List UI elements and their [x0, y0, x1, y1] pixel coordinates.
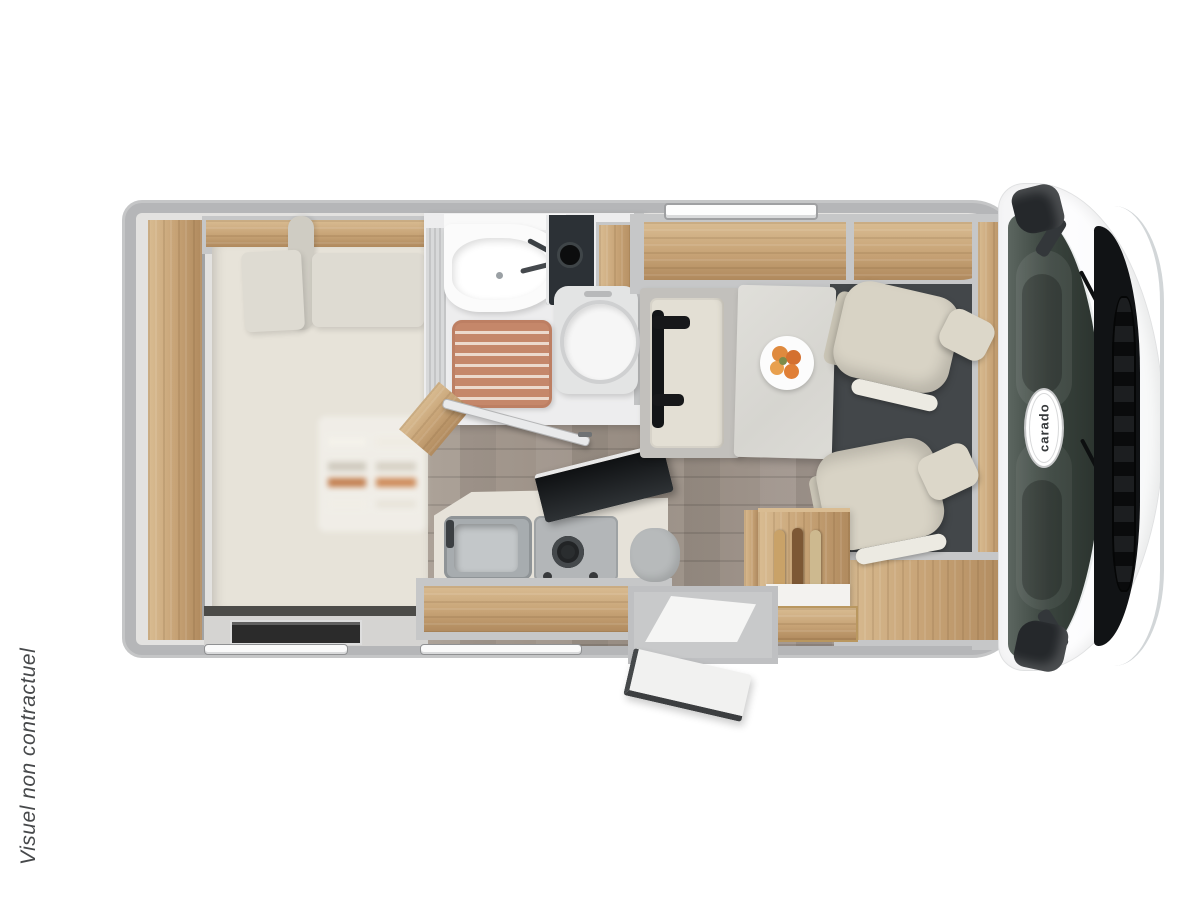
- reflection-bar: [376, 462, 416, 471]
- toilet-hinge: [584, 291, 612, 297]
- dashboard-shadow: [1022, 274, 1062, 394]
- pillow-right: [312, 253, 424, 327]
- reflection-bar: [376, 478, 416, 487]
- reflection-bar: [328, 438, 366, 446]
- caption-visuel-non-contractuel: Visuel non contractuel: [10, 622, 48, 890]
- floor-vent: [230, 620, 362, 645]
- chrome-trim: [1114, 206, 1164, 666]
- door-handle: [578, 432, 592, 437]
- bottle: [810, 530, 821, 588]
- fruit-leaf: [779, 357, 787, 365]
- toilet-seat: [560, 300, 640, 384]
- cab-step-wood-floor: [842, 560, 1008, 640]
- brand-logo-oval: carado: [1024, 388, 1064, 468]
- bottle: [774, 530, 785, 588]
- kitchen-end-cap: [630, 528, 680, 582]
- overhead-band: [644, 222, 1000, 280]
- reflection-bar: [376, 500, 416, 508]
- cabinet-counter-front: [766, 584, 850, 606]
- bottle: [792, 528, 803, 590]
- overhead-locker: [206, 220, 430, 247]
- shower-wood-mat: [452, 320, 552, 408]
- window-bottom-right: [420, 644, 582, 655]
- floor-plan-image: Visuel non contractuel: [0, 0, 1200, 900]
- reflection-bar: [328, 462, 366, 471]
- window-top: [664, 203, 818, 220]
- kitchen-faucet: [446, 520, 454, 548]
- dark-unit-knob: [557, 242, 583, 268]
- fruit: [786, 350, 801, 365]
- entrance-step: [638, 596, 756, 642]
- cabinet-drawer: [766, 606, 858, 642]
- kitchen-sink-bowl: [454, 524, 518, 572]
- fruit: [784, 364, 799, 379]
- reflection-bar: [328, 500, 366, 508]
- fruit-plate: [760, 336, 814, 390]
- table-swing-arm-bottom: [652, 394, 684, 406]
- dashboard-shadow: [1022, 480, 1062, 600]
- brand-logo-text: carado: [1026, 390, 1062, 466]
- basin-drain: [496, 272, 503, 279]
- bed-foot-trim: [204, 606, 428, 616]
- table-swing-arm-top: [652, 316, 690, 329]
- pillow-left: [241, 249, 305, 332]
- hob-burner: [552, 536, 584, 568]
- reflection-bar: [328, 478, 366, 487]
- wardrobe: [148, 220, 205, 640]
- window-bottom-left: [204, 644, 348, 655]
